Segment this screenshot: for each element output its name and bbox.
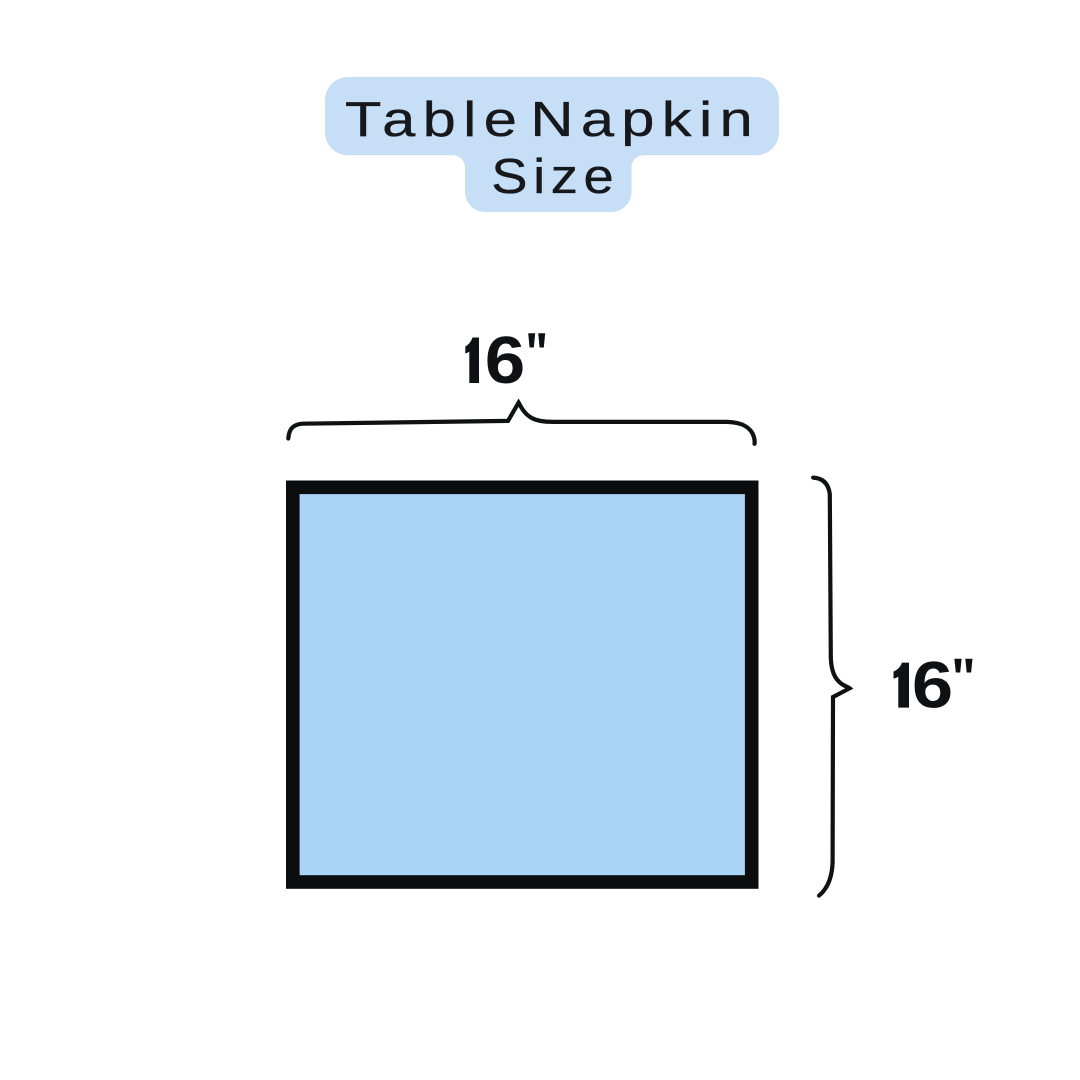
svg-text:Table Napkin: Table Napkin <box>345 93 760 147</box>
svg-text:6: 6 <box>912 648 953 722</box>
svg-text:6: 6 <box>485 324 526 398</box>
svg-text:Size: Size <box>491 150 619 204</box>
